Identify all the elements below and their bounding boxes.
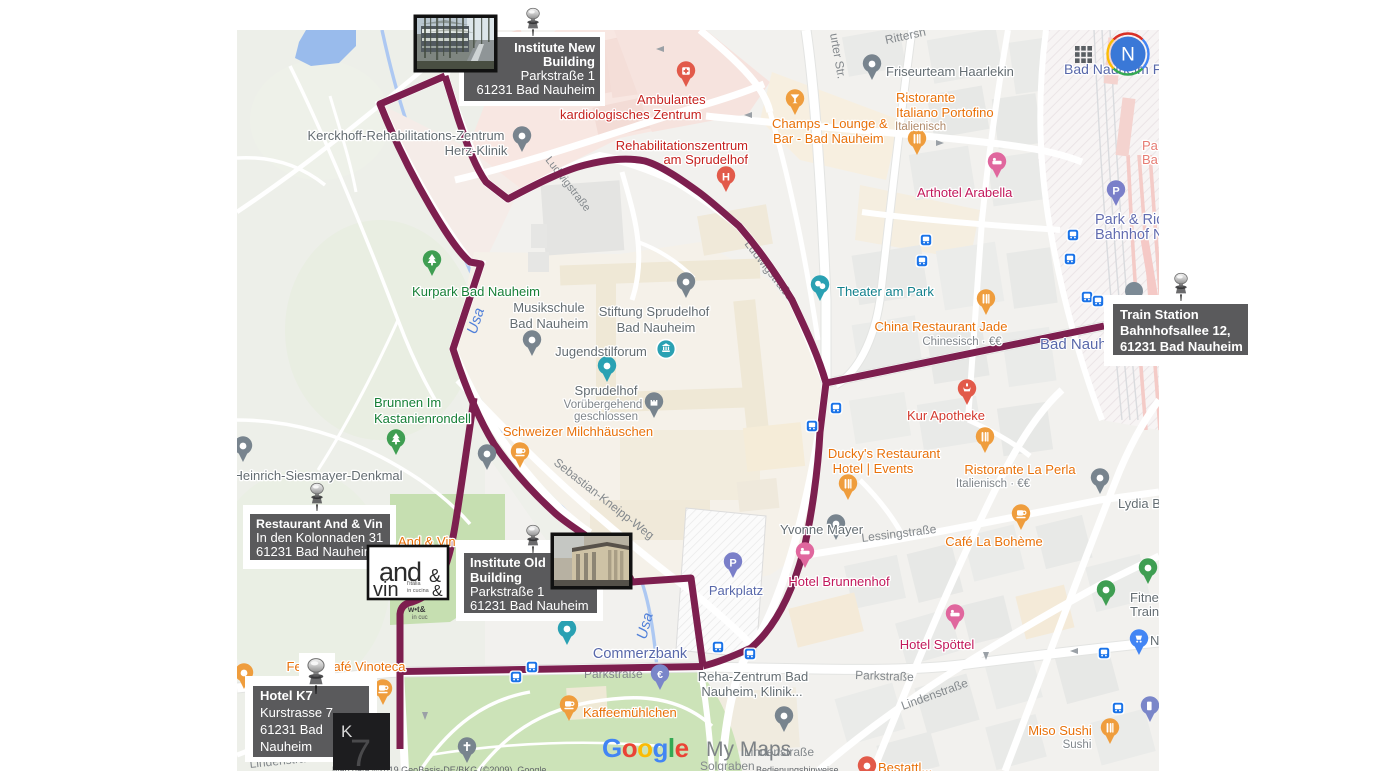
svg-text:Herz-Klinik: Herz-Klinik — [445, 143, 508, 158]
svg-text:61231 Bad Nauheim: 61231 Bad Nauheim — [476, 82, 595, 97]
svg-text:in cucina: in cucina — [407, 588, 430, 594]
svg-text:am Sprudelhof: am Sprudelhof — [663, 152, 748, 167]
svg-text:Nauheim, Klinik...: Nauheim, Klinik... — [701, 684, 802, 699]
svg-text:61231 Bad Nauheim: 61231 Bad Nauheim — [470, 598, 589, 613]
svg-text:Commerzbank: Commerzbank — [593, 646, 688, 662]
svg-text:Brunnen Im: Brunnen Im — [374, 395, 441, 410]
svg-text:Pa: Pa — [1142, 138, 1159, 153]
svg-text:vin: vin — [373, 579, 399, 601]
svg-text:Lydia Becker: Lydia Becker — [1118, 496, 1193, 511]
svg-text:Bedienungshinweise: Bedienungshinweise — [756, 765, 839, 775]
svg-text:in cuc: in cuc — [412, 615, 428, 621]
svg-text:Bad Nauheim: Bad Nauheim — [617, 320, 696, 335]
svg-text:Kurpark Bad Nauheim: Kurpark Bad Nauheim — [412, 284, 540, 299]
svg-text:Bestattl...: Bestattl... — [878, 760, 932, 775]
svg-text:Hotel K7: Hotel K7 — [260, 688, 313, 703]
svg-text:kardiologisches Zentrum: kardiologisches Zentrum — [560, 107, 702, 122]
svg-text:H: H — [722, 172, 730, 184]
svg-text:Kastanienrondell: Kastanienrondell — [374, 411, 471, 426]
svg-text:N: N — [1150, 633, 1159, 648]
svg-text:N: N — [1121, 45, 1135, 66]
svg-text:Park & Rid: Park & Rid — [1095, 212, 1164, 228]
svg-text:Solgraben: Solgraben — [700, 759, 755, 773]
svg-text:Sushi: Sushi — [1063, 739, 1092, 751]
svg-text:Ducky's Restaurant: Ducky's Restaurant — [828, 446, 941, 461]
svg-text:Reha-Zentrum Bad: Reha-Zentrum Bad — [698, 669, 809, 684]
svg-text:61231 Bad Nauheim: 61231 Bad Nauheim — [256, 544, 375, 559]
svg-text:Theater am Park: Theater am Park — [837, 284, 934, 299]
svg-text:China Restaurant Jade: China Restaurant Jade — [875, 319, 1008, 334]
svg-text:Google: Google — [602, 733, 689, 763]
svg-text:Kurstrasse 7: Kurstrasse 7 — [260, 705, 333, 720]
svg-text:Ristorante: Ristorante — [896, 90, 955, 105]
svg-text:Train Station: Train Station — [1120, 307, 1199, 322]
svg-text:Hotel Spöttel: Hotel Spöttel — [900, 637, 975, 652]
svg-text:Café La Bohème: Café La Bohème — [945, 534, 1043, 549]
svg-text:Bad Nauheim: Bad Nauheim — [510, 316, 589, 331]
svg-text:Hotel | Events: Hotel | Events — [833, 461, 914, 476]
svg-text:€: € — [657, 669, 663, 681]
svg-text:Musikschule: Musikschule — [513, 300, 585, 315]
svg-text:Hotel Brunnenhof: Hotel Brunnenhof — [788, 574, 890, 589]
svg-text:Rehabilitationszentrum: Rehabilitationszentrum — [616, 138, 748, 153]
svg-text:Ba: Ba — [1142, 152, 1159, 167]
svg-text:P: P — [729, 558, 736, 570]
svg-text:Institute New: Institute New — [514, 40, 596, 55]
svg-text:Italiano Portofino: Italiano Portofino — [896, 105, 994, 120]
svg-text:P: P — [1112, 186, 1119, 198]
svg-text:Chinesisch · €€: Chinesisch · €€ — [922, 336, 1002, 348]
svg-text:&: & — [432, 583, 443, 600]
svg-text:Yvonne Mayer: Yvonne Mayer — [780, 522, 864, 537]
svg-text:geschlossen: geschlossen — [574, 411, 638, 423]
svg-text:Institute Old: Institute Old — [470, 555, 546, 570]
svg-text:Arthotel Arabella: Arthotel Arabella — [917, 185, 1013, 200]
svg-text:Parkstraße 1: Parkstraße 1 — [470, 584, 544, 599]
svg-text:Bahnhof N: Bahnhof N — [1095, 227, 1164, 243]
svg-text:Building: Building — [543, 54, 595, 69]
svg-text:In den Kolonnaden 31: In den Kolonnaden 31 — [256, 530, 383, 545]
svg-text:61231 Bad: 61231 Bad — [260, 722, 323, 737]
svg-text:w•t&: w•t& — [407, 605, 426, 614]
svg-text:Heinrich-Siesmayer-Denkmal: Heinrich-Siesmayer-Denkmal — [233, 468, 402, 483]
svg-text:Train: Train — [1130, 604, 1159, 619]
svg-text:Friseurteam Haarlekin: Friseurteam Haarlekin — [886, 64, 1014, 79]
svg-text:Kaffeemühlchen: Kaffeemühlchen — [583, 705, 677, 720]
svg-text:Restaurant And & Vin: Restaurant And & Vin — [256, 517, 383, 531]
svg-text:Stiftung Sprudelhof: Stiftung Sprudelhof — [599, 304, 710, 319]
svg-text:7: 7 — [350, 733, 371, 775]
svg-text:Schweizer Milchhäuschen: Schweizer Milchhäuschen — [503, 424, 653, 439]
svg-text:l'italia: l'italia — [407, 581, 422, 587]
svg-text:Italienisch · €€: Italienisch · €€ — [956, 478, 1031, 490]
svg-text:Parkplatz: Parkplatz — [709, 583, 763, 598]
svg-text:Ristorante La Perla: Ristorante La Perla — [964, 462, 1076, 477]
svg-text:Nauheim: Nauheim — [260, 739, 312, 754]
svg-text:Vorübergehend: Vorübergehend — [564, 399, 643, 411]
svg-text:Bahnhofsallee 12,: Bahnhofsallee 12, — [1120, 323, 1231, 338]
svg-text:Sprudelhof: Sprudelhof — [575, 383, 638, 398]
svg-text:Fitne: Fitne — [1130, 590, 1159, 605]
svg-text:Jugendstilforum: Jugendstilforum — [555, 344, 647, 359]
svg-text:Champs - Lounge &: Champs - Lounge & — [772, 116, 888, 131]
svg-text:Miso Sushi: Miso Sushi — [1028, 723, 1092, 738]
svg-text:Kur Apotheke: Kur Apotheke — [907, 408, 985, 423]
svg-text:Parkstraße: Parkstraße — [855, 668, 914, 684]
svg-text:Parkstraße 1: Parkstraße 1 — [521, 68, 595, 83]
svg-text:Bar - Bad Nauheim: Bar - Bad Nauheim — [773, 131, 884, 146]
svg-text:Building: Building — [470, 570, 522, 585]
svg-text:61231 Bad Nauheim: 61231 Bad Nauheim — [1120, 339, 1243, 354]
svg-text:Italienisch: Italienisch — [895, 121, 946, 133]
svg-text:Ambulantes: Ambulantes — [637, 92, 706, 107]
svg-text:My Maps: My Maps — [706, 738, 791, 761]
svg-text:Kerckhoff-Rehabilitations-Zent: Kerckhoff-Rehabilitations-Zentrum — [307, 128, 504, 143]
